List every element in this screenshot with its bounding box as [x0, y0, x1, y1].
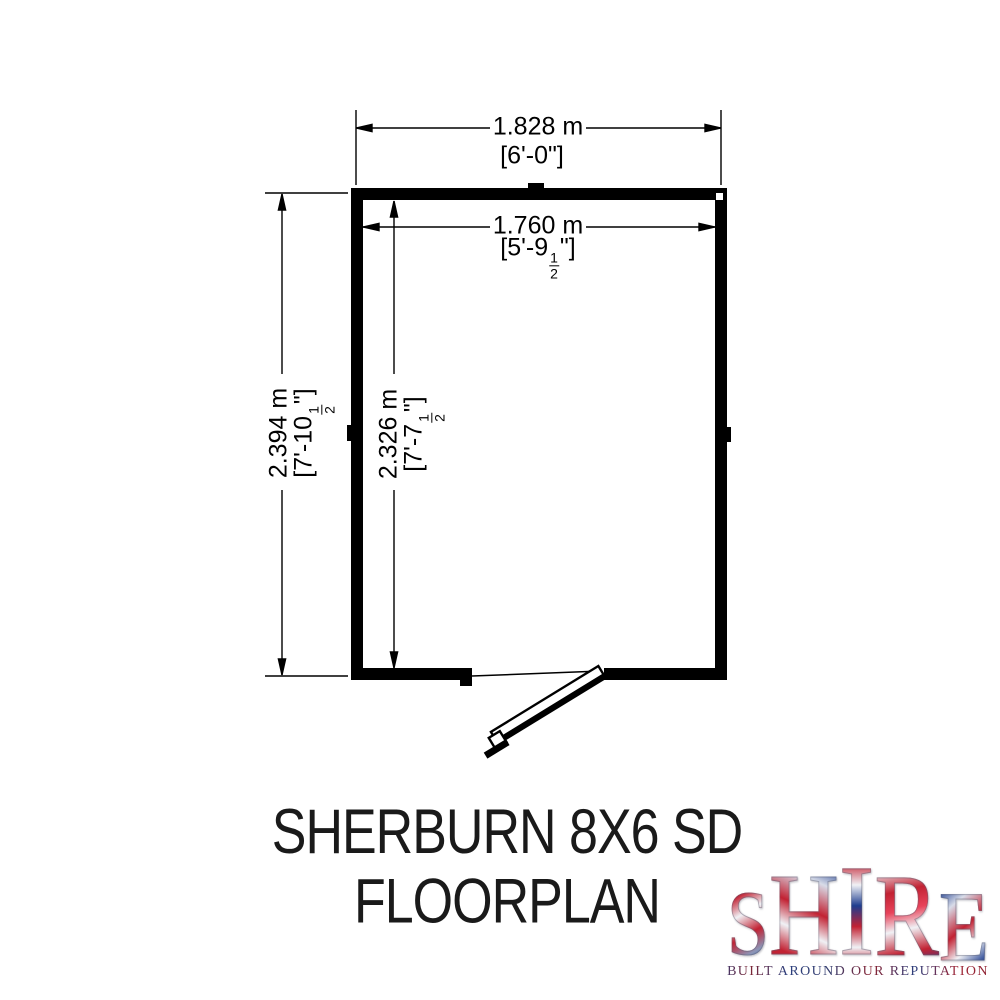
wall-bottom-right: [604, 668, 727, 680]
dim-width-outer-metric: 1.828 m: [493, 115, 583, 140]
shire-logo: S H I R E BUILT AROUND OUR REPUTATION: [716, 846, 1000, 980]
fraction-denominator: 2: [432, 414, 447, 422]
dim-height-inner-imperial: [7'-712"]: [401, 396, 446, 471]
imperial-suffix: "]: [289, 388, 317, 404]
fraction-numerator: 1: [306, 405, 322, 415]
arrow-left-icon: [363, 223, 379, 230]
door-leaf: [476, 666, 609, 759]
shire-logo-letters: S H I R E: [742, 846, 975, 962]
fraction: 12: [306, 405, 336, 415]
arrow-right-icon: [699, 223, 715, 230]
wall-right: [715, 188, 727, 680]
dim-height-outer-imperial: [7'-1012"]: [291, 388, 336, 477]
fraction: 12: [549, 250, 559, 280]
wall-bottom-left: [351, 668, 472, 680]
fraction-numerator: 1: [416, 413, 432, 423]
logo-letter-i: I: [839, 846, 875, 976]
dim-height-inner-metric: 2.326 m: [377, 389, 402, 479]
dimension-lines: [278, 124, 721, 675]
fraction: 12: [416, 413, 446, 423]
arrow-down-icon: [278, 659, 285, 675]
wall-joint-left: [347, 425, 351, 441]
fraction-denominator: 2: [550, 266, 558, 281]
logo-letter-e: E: [939, 877, 989, 977]
dim-width-inner-imperial: [5'-912"]: [500, 235, 575, 280]
logo-letter-h: H: [769, 856, 839, 974]
dim-height-outer-metric: 2.394 m: [267, 388, 292, 478]
wall-joint-top: [528, 183, 544, 189]
arrow-up-icon: [278, 194, 285, 210]
drawing-title: SHERBURN 8X6 SD FLOORPLAN: [272, 798, 742, 937]
door-jamb-tab: [460, 680, 472, 686]
wall-joint-right: [727, 427, 731, 442]
imperial-suffix: "]: [560, 233, 576, 261]
fraction-numerator: 1: [549, 250, 559, 266]
floorplan-page: 1.828 m [6'-0"] 1.760 m [5'-912"] 2.394 …: [0, 0, 1000, 1000]
imperial-prefix: [7'-10: [289, 416, 317, 478]
dim-width-outer-imperial: [6'-0"]: [500, 144, 564, 169]
title-line-1: SHERBURN 8X6 SD: [272, 798, 742, 868]
corner-post-marker: [716, 193, 723, 200]
door-leaf-panel: [491, 666, 604, 740]
wall-left: [351, 188, 363, 680]
imperial-suffix: "]: [399, 396, 427, 412]
fraction-denominator: 2: [322, 406, 337, 414]
logo-letter-r: R: [874, 857, 939, 975]
wall-top: [351, 188, 727, 200]
arrow-left-icon: [356, 124, 372, 131]
arrow-down-icon: [390, 652, 397, 668]
imperial-prefix: [5'-9: [500, 233, 548, 261]
imperial-prefix: [7'-7: [399, 424, 427, 472]
arrow-right-icon: [705, 124, 721, 131]
title-line-2: FLOORPLAN: [272, 868, 742, 938]
arrow-up-icon: [390, 201, 397, 217]
logo-letter-s: S: [727, 877, 769, 969]
